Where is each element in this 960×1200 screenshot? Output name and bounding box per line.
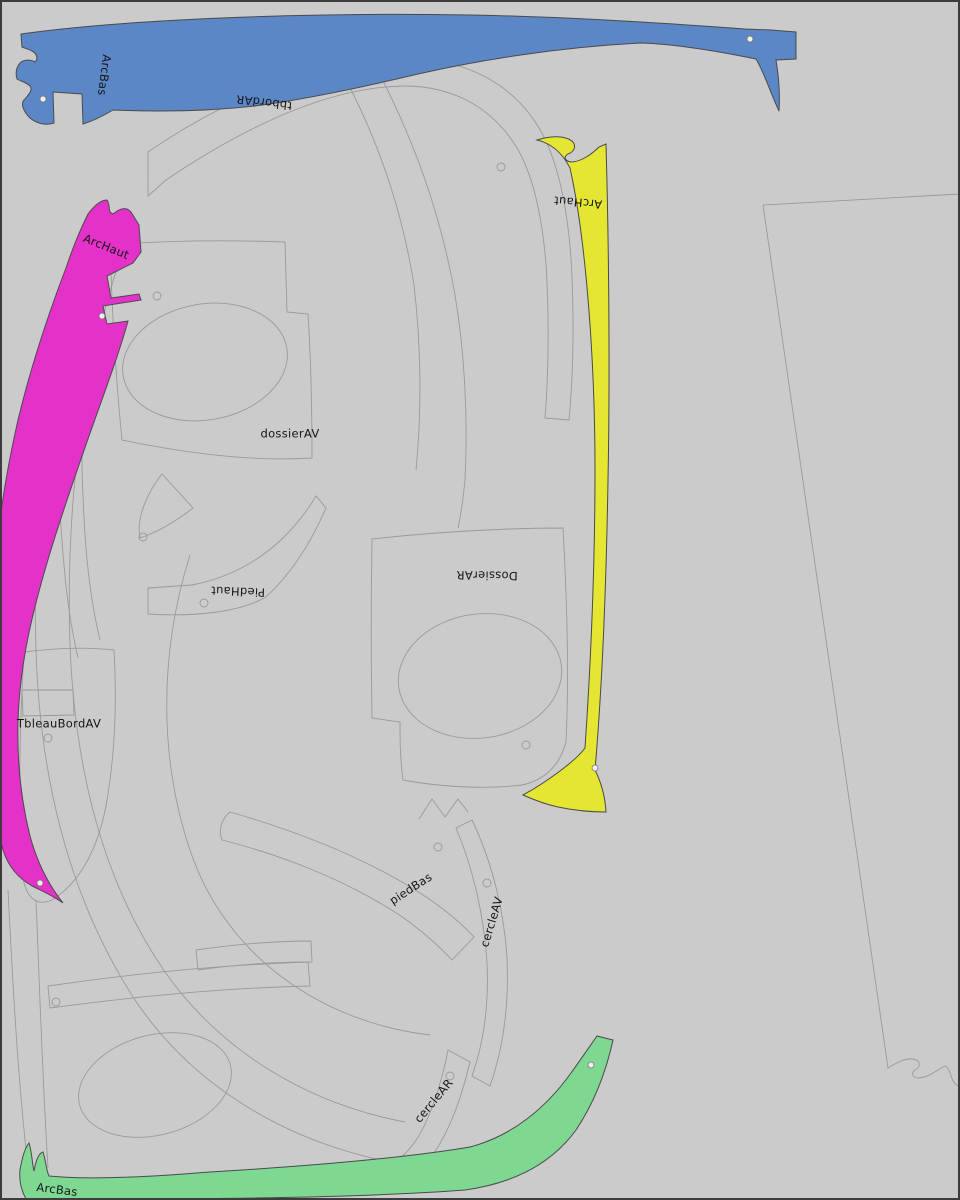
- label-dossierav: dossierAV: [260, 427, 319, 441]
- pin-hole: [588, 1062, 594, 1068]
- nesting-layout-stage: ArcBas tbbordAR ArcHaut ArcHaut dossierA…: [0, 0, 960, 1200]
- pin-hole: [747, 36, 753, 42]
- pin-hole: [99, 313, 105, 319]
- pin-hole: [37, 880, 43, 886]
- label-dossierar: DossierAR: [456, 568, 518, 583]
- label-tbleaubordav: TbleauBordAV: [16, 717, 101, 731]
- label-piedhaut: PiedHaut: [210, 584, 265, 600]
- nesting-canvas: ArcBas tbbordAR ArcHaut ArcHaut dossierA…: [0, 0, 960, 1200]
- pin-hole: [592, 765, 598, 771]
- sheet-background: [0, 0, 960, 1200]
- pin-hole: [40, 96, 46, 102]
